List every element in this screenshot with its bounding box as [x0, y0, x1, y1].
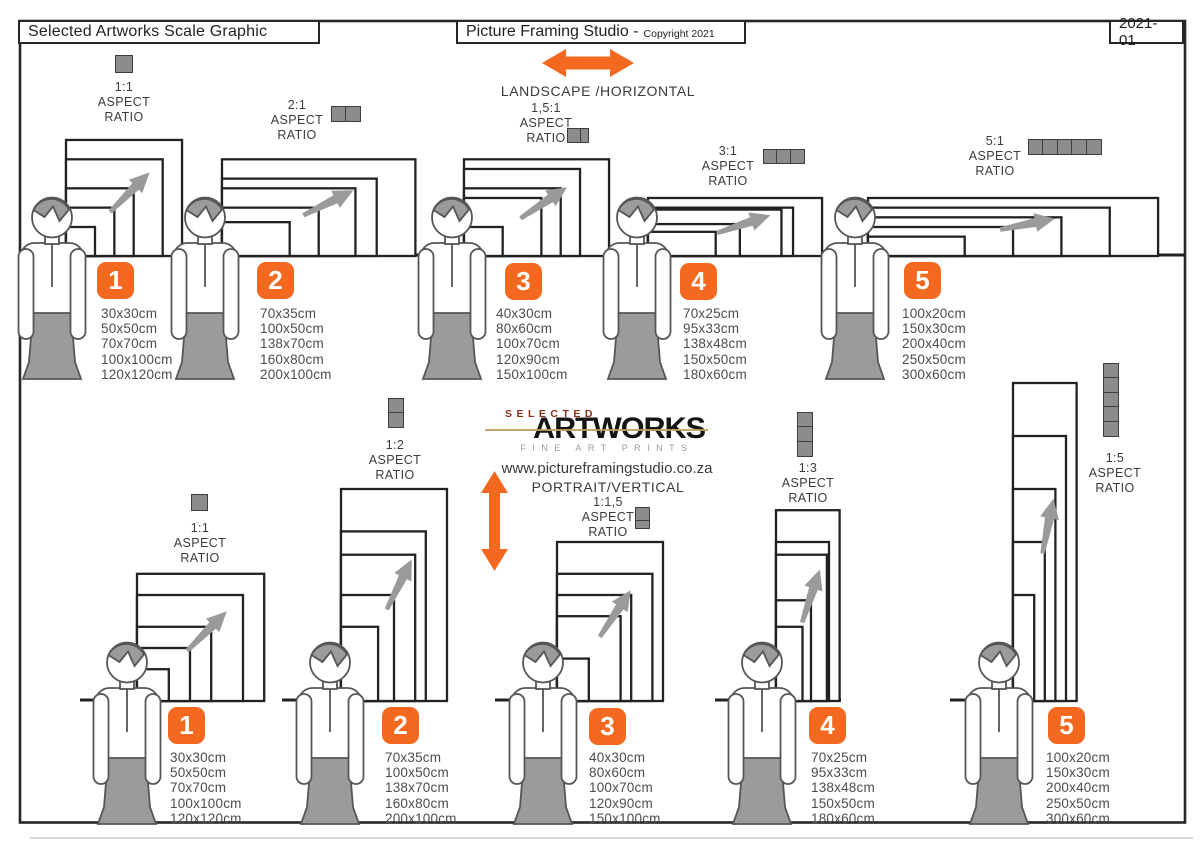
human-figure	[726, 641, 806, 831]
human-figure	[416, 196, 496, 386]
human-figure	[294, 641, 374, 831]
landscape-orientation-label: LANDSCAPE /HORIZONTAL	[468, 83, 728, 99]
page-title-box: Selected Artworks Scale Graphic	[18, 20, 320, 44]
logo-strike-line	[485, 429, 708, 431]
page-edge-shadow	[30, 837, 1193, 839]
logo-tagline-text: FINE ART PRINTS	[477, 443, 737, 453]
page-title: Selected Artworks Scale Graphic	[28, 23, 267, 41]
vertical-double-arrow-icon	[481, 471, 508, 571]
human-figure	[91, 641, 171, 831]
copyright-text: Copyright 2021	[644, 25, 715, 40]
human-figure	[819, 196, 899, 386]
human-figure	[963, 641, 1043, 831]
human-figure	[169, 196, 249, 386]
website-text: www.pictureframingstudio.co.za	[477, 460, 737, 477]
human-figure	[16, 196, 96, 386]
doc-code-box: 2021-01	[1109, 20, 1184, 44]
portrait-orientation-label: PORTRAIT/VERTICAL	[478, 479, 738, 495]
doc-code: 2021-01	[1119, 15, 1174, 49]
horizontal-double-arrow-icon	[542, 47, 634, 79]
poster-page: Selected Artworks Scale Graphic Picture …	[0, 0, 1200, 842]
studio-title-box: Picture Framing Studio - Copyright 2021	[456, 20, 746, 44]
human-figure	[507, 641, 587, 831]
human-figure	[601, 196, 681, 386]
studio-title: Picture Framing Studio -	[466, 23, 639, 41]
